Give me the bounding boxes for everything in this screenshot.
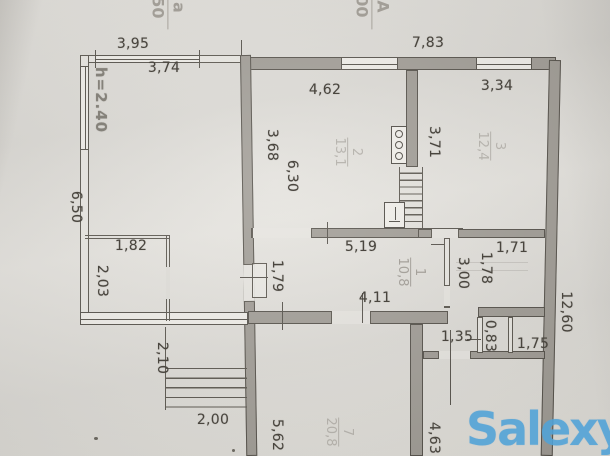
room-area: 12,4 xyxy=(476,132,490,161)
wall-right xyxy=(541,60,561,456)
dimension-label: 1,75 xyxy=(517,336,549,352)
door-leaf xyxy=(252,263,267,298)
door-opening-closet xyxy=(166,267,170,299)
room-area: 13,1 xyxy=(333,138,347,167)
room-number: 2 xyxy=(350,148,364,156)
stamp-numerator: а xyxy=(170,2,188,13)
wall-closet-right xyxy=(166,235,170,321)
wall-bath-bottom xyxy=(423,351,545,359)
room-label-7: 7 20,8 xyxy=(324,418,354,447)
ceiling-height-label: h=2.40 xyxy=(92,67,110,133)
door-opening-nook xyxy=(431,229,459,238)
dimension-label: 0,83 xyxy=(482,320,498,352)
axis-stamp-right: А 00 xyxy=(353,0,392,29)
dimension-label: 5,62 xyxy=(269,419,285,451)
stamp-numerator: А xyxy=(374,0,392,12)
wall-nook-top xyxy=(418,229,545,238)
window-top-1 xyxy=(341,57,398,70)
dimension-label: 1,82 xyxy=(115,238,147,254)
room-number: 7 xyxy=(341,428,355,436)
room-area: 10,8 xyxy=(396,258,410,287)
dimension-label: 2,00 xyxy=(197,412,229,428)
dimension-label: 6,30 xyxy=(284,160,300,192)
wall-left-bottom xyxy=(80,312,248,325)
dimension-label: 1,79 xyxy=(269,260,285,292)
wall-kitchen xyxy=(406,70,418,167)
dimension-label: 12,60 xyxy=(558,291,574,333)
dimension-label: 3,68 xyxy=(264,129,280,161)
dimension-label: 4,11 xyxy=(359,290,391,306)
dimension-label: 1,35 xyxy=(441,329,473,345)
dimension-label: 3,71 xyxy=(426,126,442,158)
window-left xyxy=(80,66,89,150)
window-tick xyxy=(95,50,96,68)
room-number: 3 xyxy=(493,142,507,150)
floor-plan-photo: 3,95 3,74 7,83 4,62 3,34 3,68 3,71 h=2.4… xyxy=(0,0,610,456)
dimension-label: 4,63 xyxy=(426,422,442,454)
window-hall-411 xyxy=(331,311,371,324)
paper-speck xyxy=(94,437,98,440)
dimension-label: 3,00 xyxy=(455,257,471,289)
door-opening-room1 xyxy=(444,285,450,307)
dimension-label: 3,95 xyxy=(117,36,149,52)
sink-icon xyxy=(384,202,405,228)
room-label-3: 3 12,4 xyxy=(476,132,506,161)
dimension-label: 1,78 xyxy=(478,252,494,284)
stove-burners-icon xyxy=(391,126,407,164)
dimension-label: 6,50 xyxy=(68,191,84,223)
dimension-line xyxy=(240,277,268,278)
room-label-1: 1 10,8 xyxy=(396,258,426,287)
dimension-label: 2,10 xyxy=(154,342,170,374)
room-area: 20,8 xyxy=(324,418,338,447)
opening-hall xyxy=(252,228,312,238)
wall-partition-room1 xyxy=(444,238,450,308)
entrance-steps-icon xyxy=(165,327,247,410)
wall-bath-top xyxy=(478,307,545,317)
window-tick xyxy=(199,50,200,68)
stamp-denominator: 50 xyxy=(149,0,167,19)
dimension-label: 3,34 xyxy=(481,78,513,94)
dimension-label: 4,62 xyxy=(309,82,341,98)
dimension-tick xyxy=(282,302,283,330)
dimension-label: 3,74 xyxy=(148,60,180,76)
dimension-label: 1,71 xyxy=(496,240,528,256)
salexy-watermark: Salexy xyxy=(466,402,610,456)
room-label-2: 2 13,1 xyxy=(333,138,363,167)
dimension-label: 5,19 xyxy=(345,239,377,255)
dimension-label: 7,83 xyxy=(412,35,444,51)
dimension-tick xyxy=(327,222,328,244)
room-number: 1 xyxy=(413,268,427,276)
wall-wc-right xyxy=(508,317,513,353)
window-top-2 xyxy=(476,57,532,70)
dimension-label: 2,03 xyxy=(94,265,110,297)
stamp-denominator: 00 xyxy=(353,0,371,18)
wall-bottom-vertical xyxy=(410,324,423,456)
wall-hall-411 xyxy=(248,311,448,324)
paper-speck xyxy=(232,449,235,452)
window-bath xyxy=(438,351,471,359)
axis-stamp-left: а 50 xyxy=(149,0,188,29)
